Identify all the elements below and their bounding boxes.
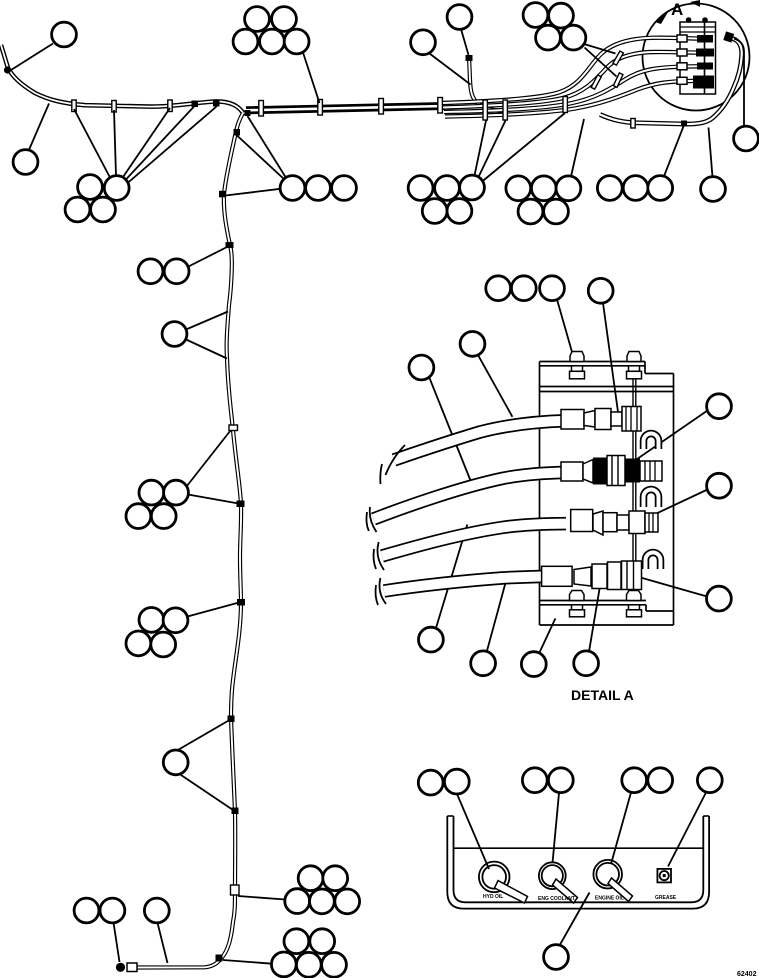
svg-text:ENG COOLANT: ENG COOLANT	[538, 896, 575, 902]
svg-text:A: A	[671, 0, 683, 19]
svg-text:GREASE: GREASE	[655, 895, 677, 901]
svg-text:DETAIL A: DETAIL A	[571, 687, 634, 703]
svg-text:62402: 62402	[737, 971, 757, 978]
svg-text:HYD OIL: HYD OIL	[483, 894, 503, 900]
svg-text:ENGINE OIL: ENGINE OIL	[595, 896, 624, 902]
